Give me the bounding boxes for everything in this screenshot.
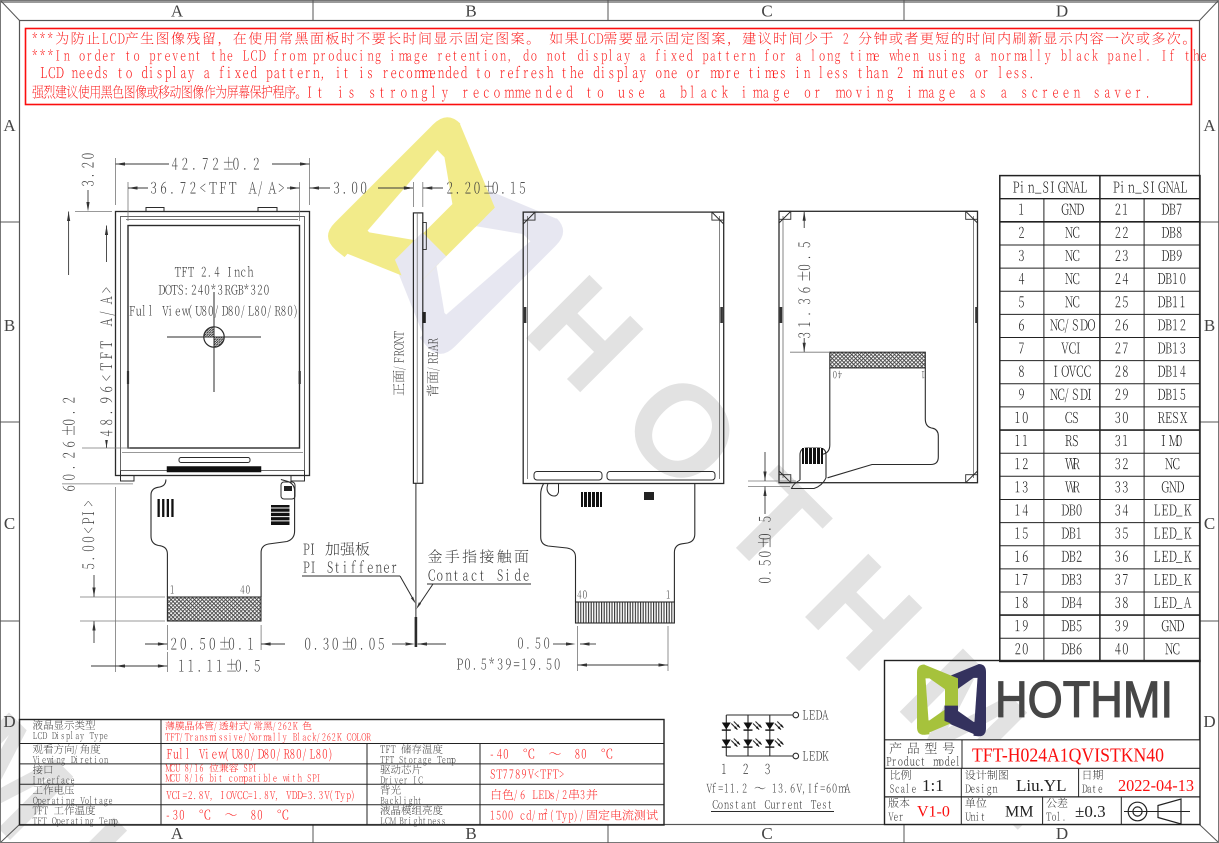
- svg-text:C: C: [761, 824, 772, 843]
- svg-text:C: C: [761, 2, 772, 21]
- svg-text:B: B: [465, 2, 476, 21]
- svg-text:B: B: [1204, 316, 1215, 335]
- svg-text:D: D: [3, 712, 15, 731]
- svg-text:A: A: [1203, 116, 1216, 135]
- svg-text:D: D: [1203, 712, 1215, 731]
- svg-text:±0.3: ±0.3: [1075, 802, 1106, 821]
- svg-text:B: B: [465, 824, 476, 843]
- svg-text:C: C: [4, 514, 15, 533]
- svg-text:B: B: [4, 316, 15, 335]
- svg-text:1:1: 1:1: [922, 776, 944, 795]
- svg-text:D: D: [1056, 2, 1068, 21]
- svg-text:A: A: [171, 824, 184, 843]
- svg-text:MM: MM: [1005, 804, 1033, 821]
- svg-text:C: C: [1204, 514, 1215, 533]
- svg-text:TFT-H024A1QVISTKN40: TFT-H024A1QVISTKN40: [972, 745, 1164, 767]
- svg-text:V1-0: V1-0: [917, 804, 950, 821]
- svg-text:A: A: [171, 2, 184, 21]
- svg-text:A: A: [3, 116, 16, 135]
- svg-text:2022-04-13: 2022-04-13: [1118, 776, 1194, 795]
- svg-text:Liu.YL: Liu.YL: [1016, 776, 1067, 795]
- svg-text:D: D: [1056, 824, 1068, 843]
- svg-text:HOTHMI: HOTHMI: [995, 671, 1173, 728]
